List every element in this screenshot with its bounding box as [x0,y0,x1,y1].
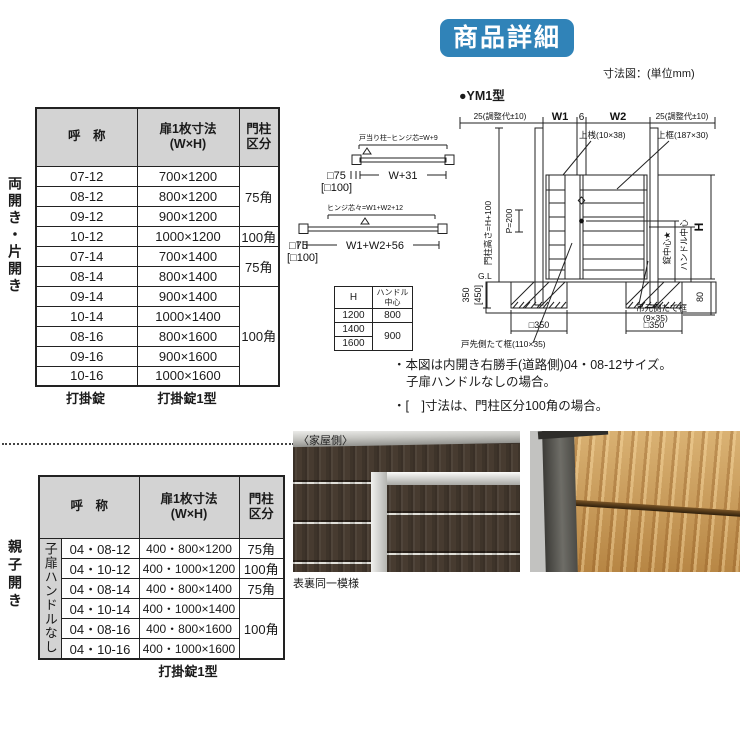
unit-note: 寸法図：(単位mm) [603,65,695,81]
house-side-label: 〈家屋側〉 [298,432,353,448]
pitch-label: P=200 [504,208,514,233]
gate-drawing [535,128,658,305]
table-row: 04・10-12400・1000×1200100角 [39,558,284,578]
foundation-350-right: □350 [644,320,664,330]
lock-center-label: 錠中心★ [662,231,672,265]
plan-diagrams: 戸当り柱~ヒンジ芯=W+9 W+31 □75 [□100] ヒンジ芯々=W1+W… [287,128,462,273]
post-span: 100角 [239,598,284,659]
top-frame-label: 上框(187×30) [657,130,708,140]
table-row: 07-12700×120075角 [36,166,279,186]
note-line: ・本図は内開き右勝手(道路側)04・08-12サイズ。 [393,357,740,374]
plan-diagram-double: ヒンジ芯々=W1+W2+12 W1+W2+56 □75 [□100] [287,203,447,264]
post-span: 100角 [239,226,279,246]
wood-panel-front [387,485,520,572]
table2-footer: 打掛錠1型 [137,661,239,680]
col-header-post: 門柱区分 [239,108,279,166]
col-header-size: 扉1枚寸法(W×H) [139,476,239,538]
dim-adjust-right: 25(調整代±10) [656,111,709,121]
center-dimensions: 錠中心★ ハンドル中心 [586,219,695,282]
top-rail-label: 上桟(10×38) [579,130,626,140]
gate-post [542,431,578,572]
latch-stile-label: 戸先側たて框(110×35) [461,339,546,349]
hinge-stile-label: 吊元側たて框 [636,303,688,313]
sub-label-no-child-handle: 子扉ハンドルなし [39,538,61,659]
table-row: 子扉ハンドルなし 04・08-12400・800×120075角 [39,538,284,558]
col-header-h: H [335,287,373,309]
note-line: 子扉ハンドルなしの場合。 [393,374,740,391]
post-span: 75角 [239,246,279,286]
plan2-post-size-alt: [□100] [287,252,318,264]
dim-6: 6 [579,112,585,123]
ground-level-label: G.L [478,271,492,281]
notes: ・本図は内開き右勝手(道路側)04・08-12サイズ。 子扉ハンドルなしの場合。… [393,357,740,415]
col-header-name: 呼 称 [39,476,139,538]
photo-wood-closeup [530,431,740,572]
table-row: 1200800 [335,309,413,323]
left-dimensions: 門柱高さ=H+100 P=200 G.L 350 [450] [461,128,523,308]
col-header-name: 呼 称 [36,108,137,166]
plan2-post-size: □75 [289,240,308,252]
lock-type-label: 打掛錠 [35,388,136,407]
post-span: 75角 [239,538,284,558]
spec-table-parent-child: 呼 称 扉1枚寸法(W×H) 門柱区分 子扉ハンドルなし 04・08-12400… [38,475,285,660]
handle-height-table: H ハンドル中心 1200800 1400900 1600 [334,286,413,351]
col-header-post: 門柱区分 [239,476,284,538]
dim-adjust-left: 25(調整代±10) [474,111,527,121]
table-header-row: 呼 称 扉1枚寸法(W×H) 門柱区分 [39,476,284,538]
note-line: ・[ ]寸法は、門柱区分100角の場合。 [393,398,740,415]
depth-350-label: 350 [461,287,471,302]
spec-table-double-single: 呼 称 扉1枚寸法(W×H) 門柱区分 07-12700×120075角 08-… [35,107,280,387]
post-span: 75角 [239,578,284,598]
plan-diagram-single: 戸当り柱~ヒンジ芯=W+9 W+31 □75 [□100] [321,133,454,194]
table-row: 10-121000×1200100角 [36,226,279,246]
hinge-arrow-icon [361,218,369,224]
top-dimension: 25(調整代±10) W1 6 W2 25(調整代±10) [460,111,715,175]
table-header-row: 呼 称 扉1枚寸法(W×H) 門柱区分 [36,108,279,166]
hinge-arrow-icon [363,148,371,154]
depth-450-label: [450] [473,285,483,305]
front-panel-frame-vertical [371,472,387,572]
plan1-post-size-alt: [□100] [321,182,352,194]
col-header-size: 扉1枚寸法(W×H) [137,108,239,166]
product-detail-page: 商品詳細 寸法図：(単位mm) ●YM1型 両開き・片開き 親子開き 呼 称 扉… [0,0,740,740]
foundation-350-left: □350 [529,320,549,330]
dim-80-label: 80 [695,292,705,302]
dim-w1: W1 [552,111,569,123]
post-span: 100角 [239,286,279,386]
plan1-post-size: □75 [327,170,346,182]
table2-side-label: 親子開き [5,539,25,631]
plan1-top-label: 戸当り柱~ヒンジ芯=W+9 [359,133,438,142]
table-row: 1400900 [335,323,413,337]
table1-side-label: 両開き・片開き [5,176,25,326]
table-row: 04・08-14400・800×140075角 [39,578,284,598]
table-row: 04・10-14400・1000×1400100角 [39,598,284,618]
lock-dot-icon [579,219,584,224]
table-row: 09-14900×1400100角 [36,286,279,306]
post-span: 75角 [239,166,279,226]
photo-house-side: 〈家屋側〉 [293,431,520,572]
post-height-label: 門柱高さ=H+100 [483,201,493,266]
col-header-handle: ハンドル中心 [373,287,413,309]
plan2-top-label: ヒンジ芯々=W1+W2+12 [327,203,403,212]
dim-w2: W2 [610,111,627,123]
elevation-diagram: 25(調整代±10) W1 6 W2 25(調整代±10) 上桟(10×38) … [453,93,740,365]
table-row: 07-14700×140075角 [36,246,279,266]
table-header-row: H ハンドル中心 [335,287,413,309]
section-divider [2,443,294,445]
lock-type1-label: 打掛錠1型 [136,388,238,407]
front-panel-frame-horizontal [371,472,520,485]
page-title-badge: 商品詳細 [440,19,574,57]
handle-center-label: ハンドル中心 [679,219,689,271]
post-span: 100角 [239,558,284,578]
photo-caption: 表裏同一模様 [293,575,359,591]
plan1-width-dim: W+31 [388,170,417,182]
plan2-width-dim: W1+W2+56 [346,240,404,252]
